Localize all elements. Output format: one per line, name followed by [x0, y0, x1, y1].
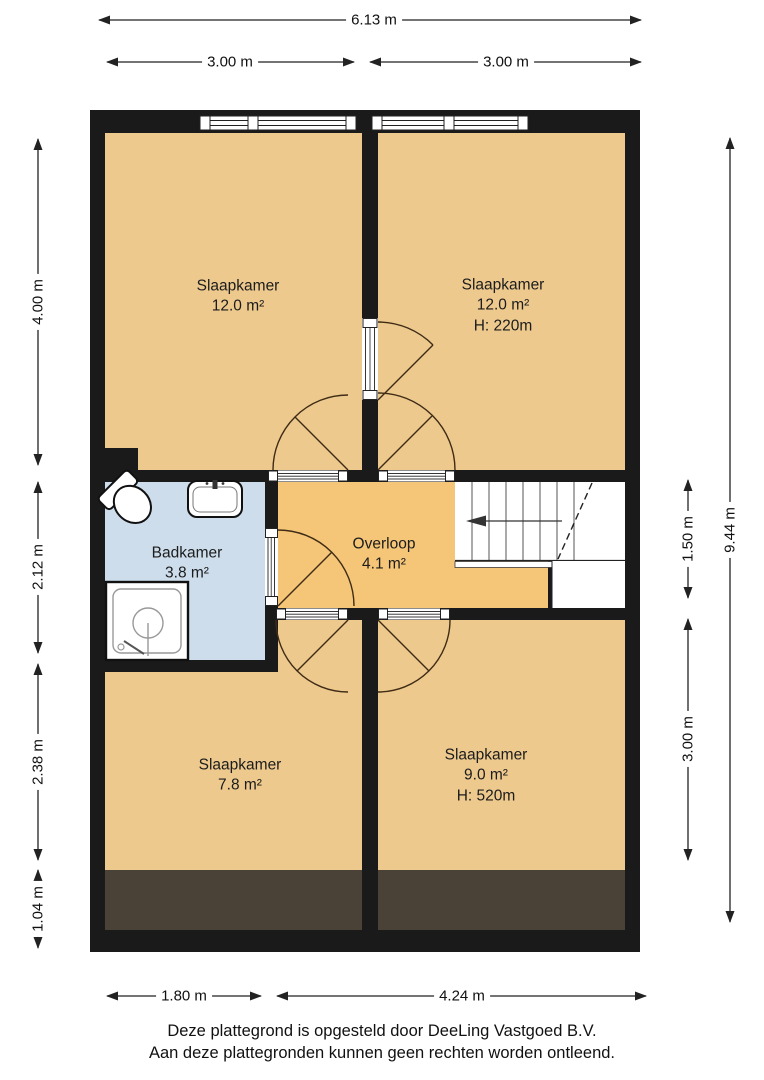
room-area: 12.0 m²	[462, 296, 545, 316]
label-landing: Overloop 4.1 m²	[353, 535, 416, 576]
label-bedroom-top-left: Slaapkamer 12.0 m²	[197, 277, 280, 318]
floorplan-page: 6.13 m 3.00 m 3.00 m 4.00 m 2.12 m 2.38 …	[0, 0, 764, 1080]
door-bedroom-bottom-left	[276, 609, 348, 693]
dim-right-stair: 1.50 m	[680, 511, 697, 567]
stairs-void	[552, 561, 625, 608]
footer-line1: Deze plattegrond is opgesteld door DeeLi…	[0, 1020, 764, 1042]
room-height: H: 520m	[445, 786, 528, 806]
sink-icon	[188, 480, 242, 517]
room-area: 4.1 m²	[353, 555, 416, 575]
stairs	[455, 482, 625, 608]
room-name: Overloop	[353, 535, 416, 555]
footer-disclaimer: Deze plattegrond is opgesteld door DeeLi…	[0, 1020, 764, 1064]
door-between-bedrooms	[362, 318, 433, 400]
window-top-right-icon	[372, 116, 528, 130]
dim-left-upper: 4.00 m	[30, 274, 47, 330]
dim-right-total: 9.44 m	[722, 502, 739, 558]
door-bedroom-top-right	[378, 393, 455, 482]
window-top-left-icon	[200, 116, 356, 130]
label-bathroom: Badkamer 3.8 m²	[152, 544, 223, 585]
room-name: Slaapkamer	[462, 275, 545, 295]
dim-bottom-left: 1.80 m	[156, 988, 212, 1005]
label-bedroom-bottom-right: Slaapkamer 9.0 m² H: 520m	[445, 745, 528, 806]
dim-top-right-half: 3.00 m	[478, 54, 534, 71]
room-name: Slaapkamer	[197, 277, 280, 297]
dim-bottom-right: 4.24 m	[434, 988, 490, 1005]
label-bedroom-top-right: Slaapkamer 12.0 m² H: 220m	[462, 275, 545, 336]
door-bedroom-top-left	[268, 395, 348, 482]
dim-left-lower: 2.38 m	[30, 734, 47, 790]
shower-icon	[106, 582, 188, 660]
room-height: H: 220m	[462, 316, 545, 336]
dim-top-left-half: 3.00 m	[202, 54, 258, 71]
room-area: 9.0 m²	[445, 766, 528, 786]
footer-line2: Aan deze plattegronden kunnen geen recht…	[0, 1042, 764, 1064]
door-bathroom	[265, 528, 354, 606]
room-name: Slaapkamer	[445, 745, 528, 765]
dim-left-middle: 2.12 m	[30, 539, 47, 595]
stairs-balustrade	[455, 562, 552, 568]
room-area: 3.8 m²	[152, 564, 223, 584]
room-name: Badkamer	[152, 544, 223, 564]
door-bedroom-bottom-right	[378, 609, 450, 693]
room-area: 7.8 m²	[199, 776, 282, 796]
dim-right-lower: 3.00 m	[680, 711, 697, 767]
dim-left-bottom: 1.04 m	[30, 881, 47, 937]
label-bedroom-bottom-left: Slaapkamer 7.8 m²	[199, 756, 282, 797]
dim-top-total: 6.13 m	[346, 12, 402, 29]
toilet-icon	[97, 469, 161, 533]
room-area: 12.0 m²	[197, 297, 280, 317]
room-name: Slaapkamer	[199, 756, 282, 776]
